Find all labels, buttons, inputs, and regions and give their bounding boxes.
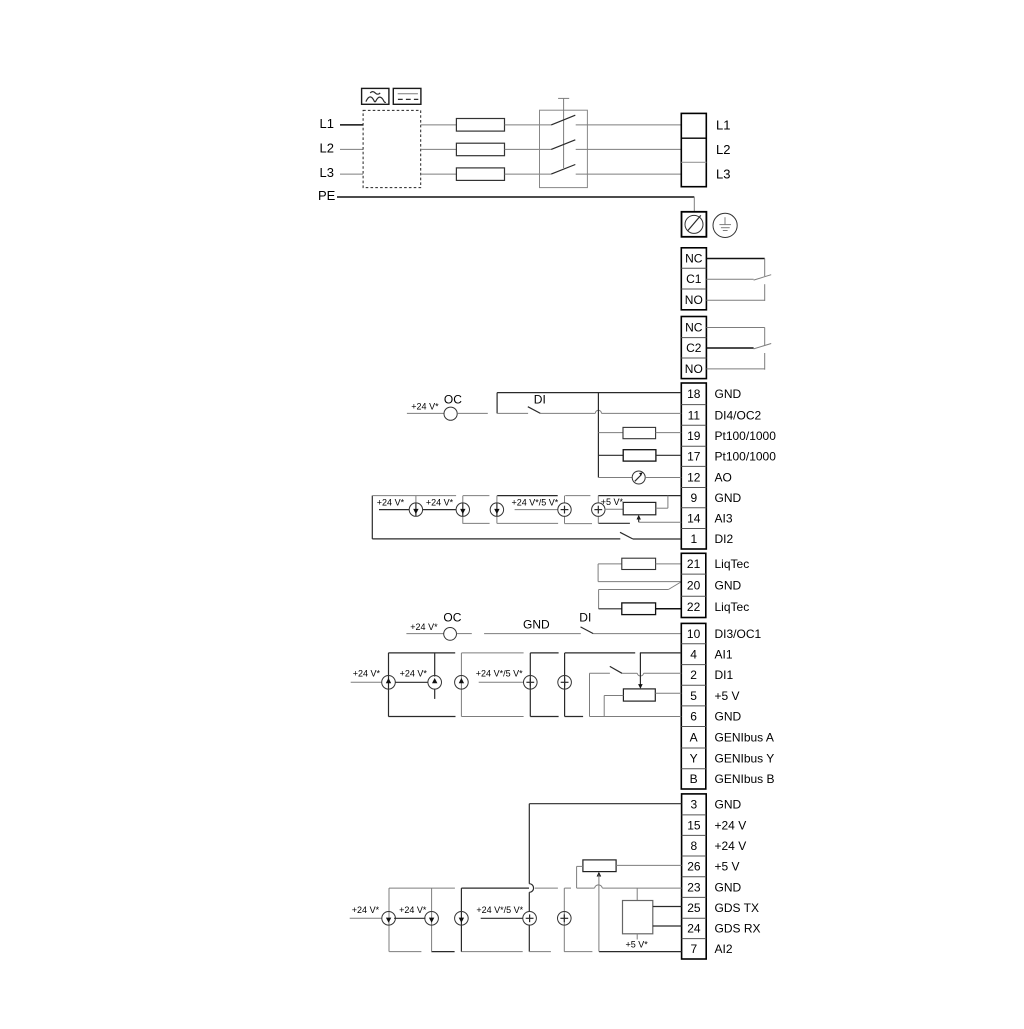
svg-text:21: 21 (687, 557, 701, 571)
svg-text:25: 25 (687, 901, 701, 915)
svg-text:3: 3 (691, 798, 698, 812)
svg-text:LiqTec: LiqTec (715, 600, 750, 614)
svg-text:7: 7 (691, 942, 698, 956)
svg-text:+24 V*: +24 V* (410, 622, 438, 632)
svg-text:+24 V*: +24 V* (399, 905, 427, 915)
svg-text:L1: L1 (716, 117, 730, 132)
svg-text:NO: NO (685, 293, 703, 307)
svg-text:+24 V*: +24 V* (352, 905, 380, 915)
svg-text:OC: OC (444, 392, 462, 406)
svg-text:+24 V: +24 V (715, 819, 747, 833)
svg-text:5: 5 (690, 689, 697, 703)
svg-text:L1: L1 (320, 116, 334, 131)
svg-text:GND: GND (715, 491, 742, 505)
svg-text:DI3/OC1: DI3/OC1 (715, 627, 762, 641)
svg-text:L3: L3 (716, 167, 730, 182)
svg-text:+5 V*: +5 V* (626, 940, 649, 950)
svg-text:Pt100/1000: Pt100/1000 (715, 450, 777, 464)
svg-text:18: 18 (687, 387, 701, 401)
svg-text:11: 11 (688, 408, 701, 422)
svg-text:19: 19 (687, 429, 701, 443)
svg-text:+24 V*: +24 V* (353, 668, 381, 678)
svg-text:22: 22 (687, 600, 701, 614)
svg-text:PE: PE (318, 188, 336, 203)
svg-text:DI: DI (534, 392, 546, 406)
svg-text:L2: L2 (716, 142, 730, 157)
svg-text:LiqTec: LiqTec (715, 557, 750, 571)
svg-text:NO: NO (685, 362, 703, 376)
svg-text:AI3: AI3 (715, 511, 733, 525)
svg-text:NC: NC (685, 320, 703, 334)
svg-text:15: 15 (687, 819, 701, 833)
svg-text:C2: C2 (686, 341, 702, 355)
svg-text:GENIbus A: GENIbus A (715, 731, 774, 745)
svg-text:2: 2 (690, 668, 697, 682)
svg-text:+24 V*: +24 V* (426, 497, 454, 507)
svg-text:GENIbus B: GENIbus B (715, 772, 775, 786)
svg-text:1: 1 (690, 532, 697, 546)
svg-text:GENIbus Y: GENIbus Y (715, 752, 775, 766)
svg-text:GND: GND (715, 579, 742, 593)
svg-text:+24 V*: +24 V* (400, 668, 428, 678)
svg-text:L2: L2 (320, 140, 334, 155)
svg-text:17: 17 (687, 450, 701, 464)
svg-text:GND: GND (715, 880, 742, 894)
svg-text:23: 23 (687, 880, 701, 894)
svg-text:+24 V*: +24 V* (411, 402, 439, 412)
svg-text:24: 24 (687, 922, 701, 936)
svg-text:GND: GND (715, 710, 742, 724)
svg-text:+5 V: +5 V (715, 860, 740, 874)
svg-text:L3: L3 (320, 165, 334, 180)
svg-text:AI1: AI1 (715, 648, 733, 662)
svg-text:DI2: DI2 (715, 532, 734, 546)
svg-text:6: 6 (690, 710, 697, 724)
svg-text:A: A (690, 731, 698, 745)
svg-text:+5 V: +5 V (715, 689, 740, 703)
svg-text:GDS RX: GDS RX (715, 922, 761, 936)
svg-text:B: B (690, 772, 698, 786)
svg-text:+24 V*/5 V*: +24 V*/5 V* (512, 497, 559, 507)
svg-text:+24 V*/5 V*: +24 V*/5 V* (476, 668, 523, 678)
svg-text:+24 V*: +24 V* (377, 497, 405, 507)
svg-text:9: 9 (690, 491, 697, 505)
svg-text:NC: NC (685, 251, 703, 265)
svg-text:+24 V: +24 V (715, 839, 747, 853)
svg-text:GND: GND (715, 798, 742, 812)
svg-text:GND: GND (523, 617, 550, 631)
svg-text:AI2: AI2 (715, 942, 733, 956)
svg-text:DI: DI (579, 611, 591, 625)
svg-text:14: 14 (687, 511, 701, 525)
svg-text:Pt100/1000: Pt100/1000 (715, 429, 777, 443)
svg-text:10: 10 (687, 627, 701, 641)
svg-text:OC: OC (443, 610, 461, 624)
svg-text:20: 20 (687, 579, 701, 593)
svg-text:4: 4 (690, 648, 697, 662)
svg-text:8: 8 (691, 839, 698, 853)
svg-text:C1: C1 (686, 272, 702, 286)
svg-text:GDS TX: GDS TX (715, 901, 759, 915)
svg-text:12: 12 (687, 470, 701, 484)
svg-text:GND: GND (715, 387, 742, 401)
svg-text:DI1: DI1 (715, 668, 734, 682)
svg-text:DI4/OC2: DI4/OC2 (715, 408, 762, 422)
svg-text:26: 26 (687, 860, 701, 874)
svg-text:Y: Y (690, 752, 698, 766)
svg-text:+24 V*/5 V*: +24 V*/5 V* (476, 905, 523, 915)
svg-text:AO: AO (715, 470, 732, 484)
